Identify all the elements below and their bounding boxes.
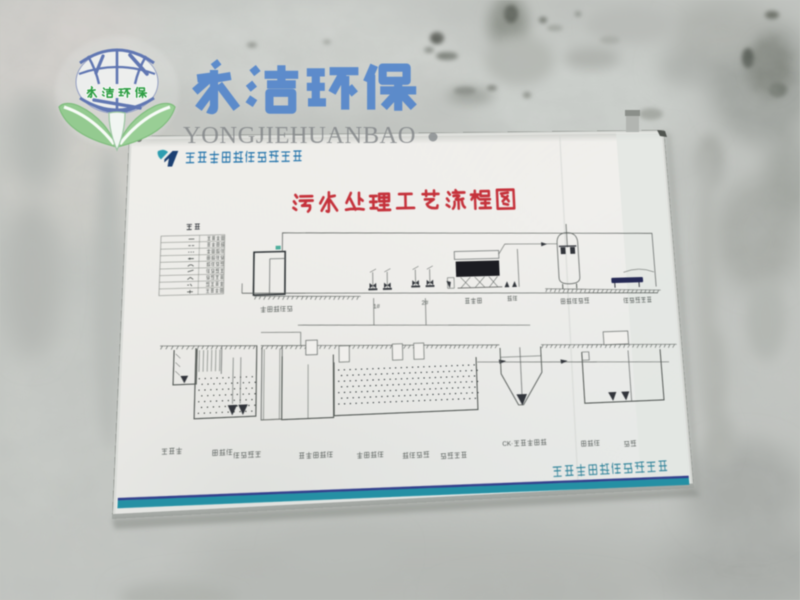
svg-text:YONGJIEHUANBAO: YONGJIEHUANBAO xyxy=(183,122,416,149)
